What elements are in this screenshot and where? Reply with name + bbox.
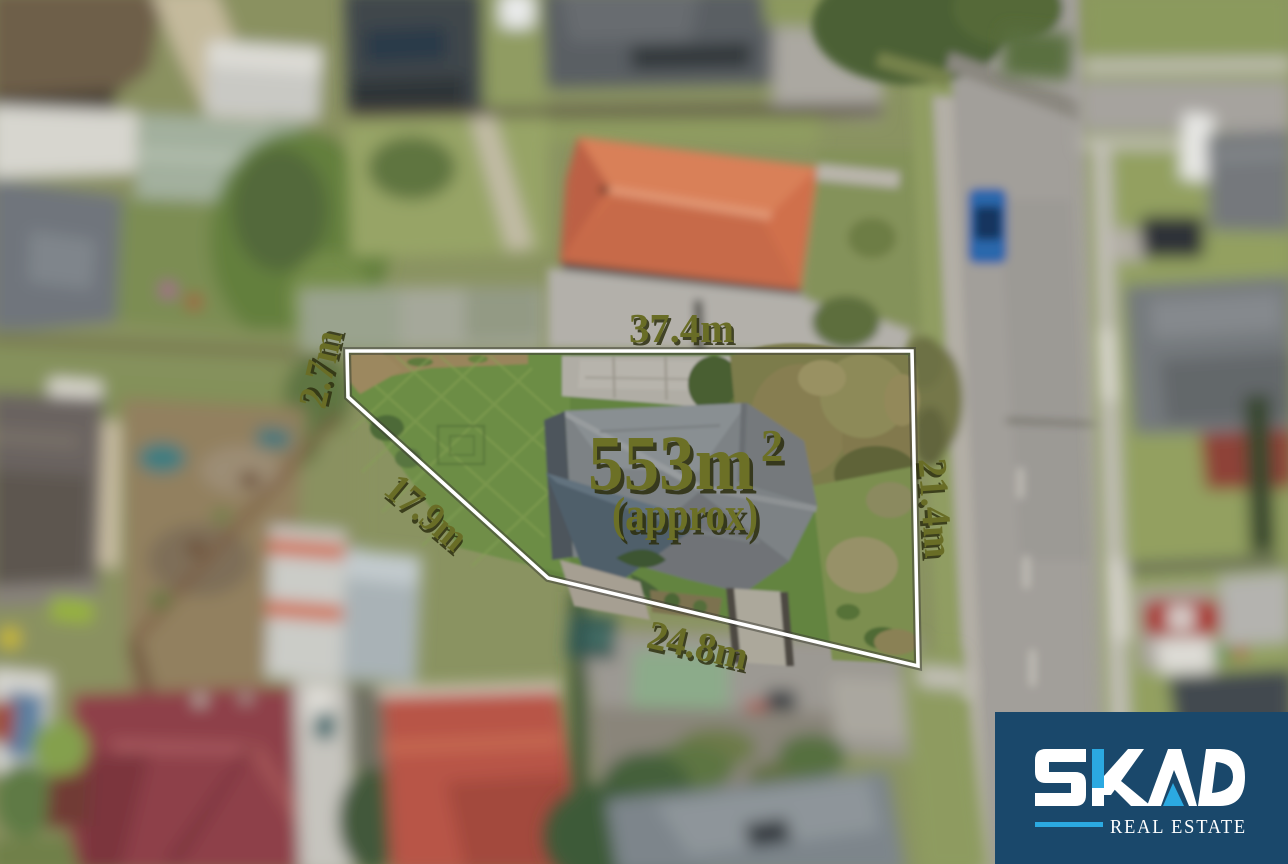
svg-text:REAL ESTATE: REAL ESTATE xyxy=(1110,816,1247,838)
svg-text:21.4m: 21.4m xyxy=(910,457,963,560)
svg-text:(approx): (approx) xyxy=(612,488,758,541)
svg-text:37.4m: 37.4m xyxy=(629,305,734,351)
svg-text:2: 2 xyxy=(761,421,784,471)
